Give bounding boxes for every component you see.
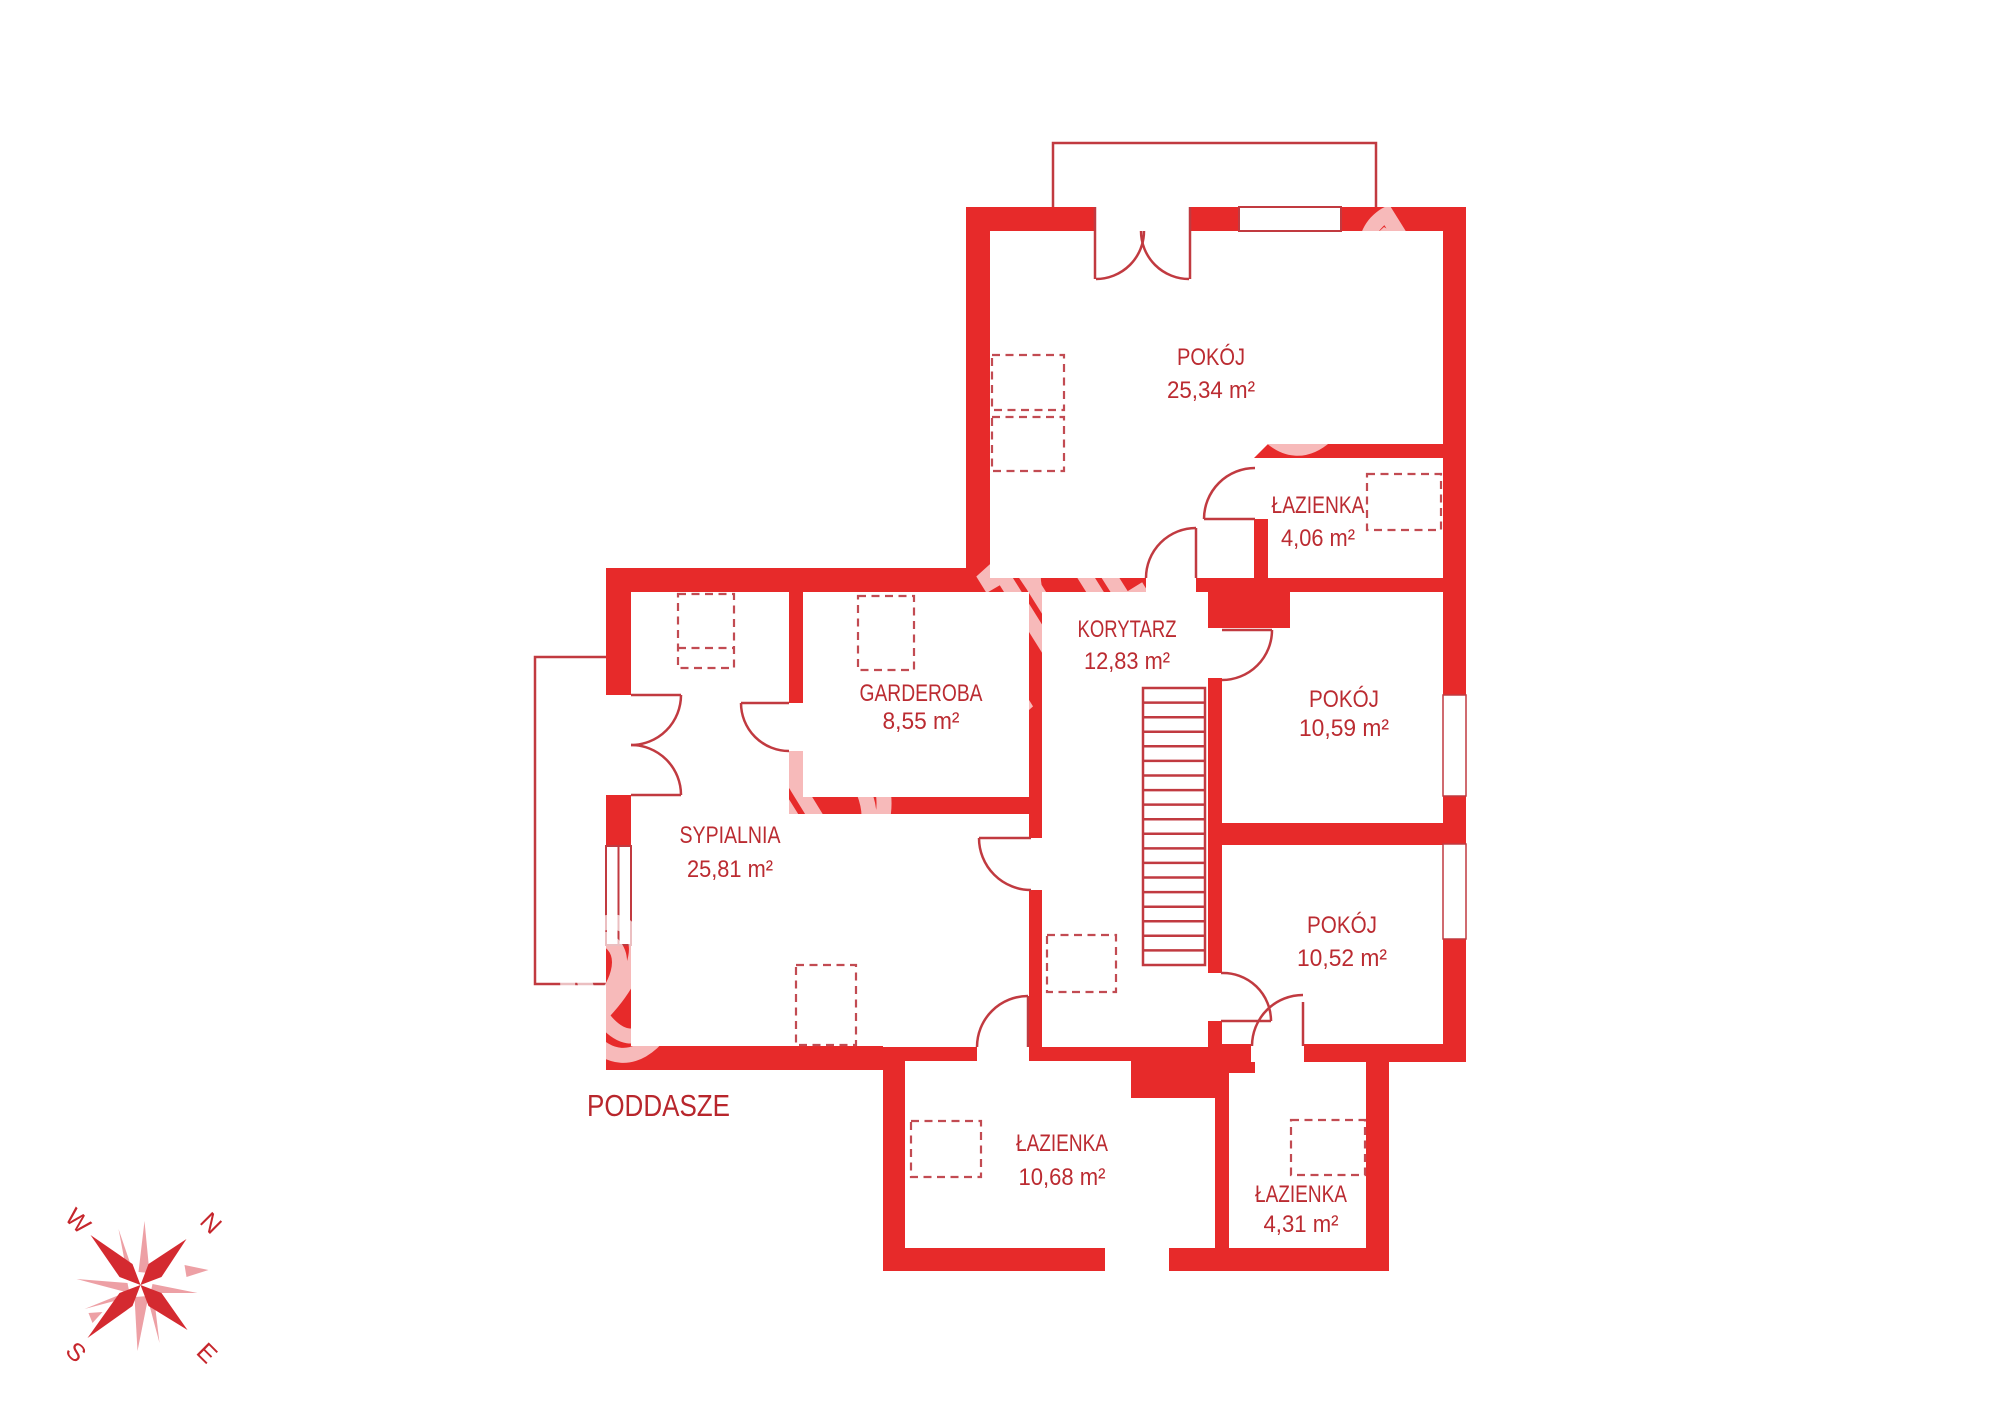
svg-text:PODDASZE: PODDASZE bbox=[587, 1088, 730, 1123]
svg-text:SYPIALNIA: SYPIALNIA bbox=[680, 822, 781, 849]
svg-text:10,68 m²: 10,68 m² bbox=[1019, 1164, 1106, 1191]
svg-text:10,59 m²: 10,59 m² bbox=[1299, 715, 1389, 742]
svg-text:12,83 m²: 12,83 m² bbox=[1084, 648, 1170, 675]
svg-text:ŁAZIENKA: ŁAZIENKA bbox=[1272, 492, 1365, 519]
svg-text:ŁAZIENKA: ŁAZIENKA bbox=[1016, 1130, 1108, 1157]
svg-text:25,34 m²: 25,34 m² bbox=[1167, 377, 1255, 404]
svg-text:ŁAZIENKA: ŁAZIENKA bbox=[1255, 1181, 1347, 1208]
svg-text:POKÓJ: POKÓJ bbox=[1309, 686, 1379, 713]
svg-text:KORYTARZ: KORYTARZ bbox=[1078, 616, 1177, 643]
svg-text:8,55 m²: 8,55 m² bbox=[883, 708, 960, 735]
svg-text:4,31 m²: 4,31 m² bbox=[1264, 1211, 1339, 1238]
svg-text:POKÓJ: POKÓJ bbox=[1177, 344, 1245, 371]
svg-text:25,81 m²: 25,81 m² bbox=[687, 856, 773, 883]
svg-text:10,52 m²: 10,52 m² bbox=[1297, 945, 1387, 972]
svg-text:GARDEROBA: GARDEROBA bbox=[860, 680, 983, 707]
svg-text:POKÓJ: POKÓJ bbox=[1307, 912, 1377, 939]
svg-text:4,06 m²: 4,06 m² bbox=[1281, 525, 1355, 552]
